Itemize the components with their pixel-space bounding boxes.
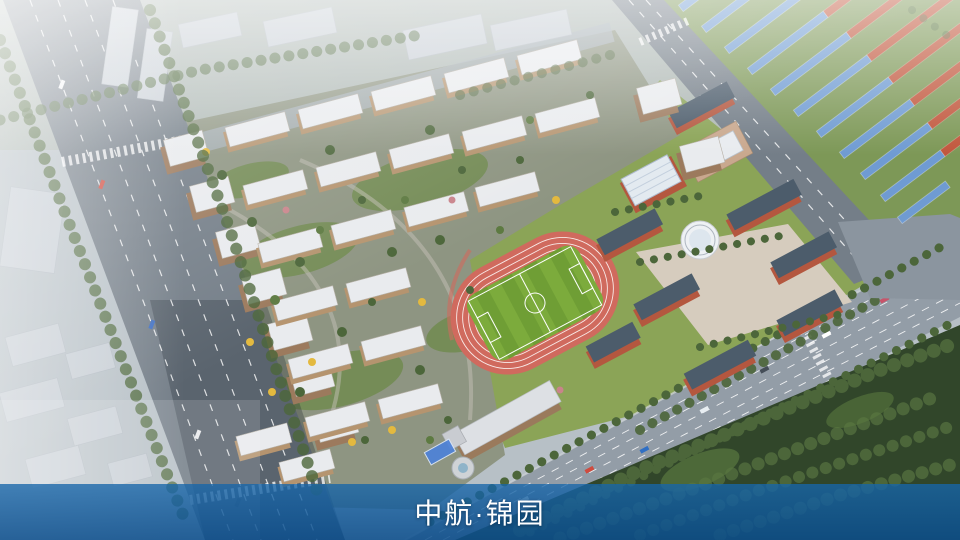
project-title: 中航·锦园 — [414, 492, 545, 532]
bottom-banner: 中航·锦园 — [0, 484, 960, 540]
render-scene — [0, 0, 960, 540]
aerial-render: 中航·锦园 — [0, 0, 960, 540]
